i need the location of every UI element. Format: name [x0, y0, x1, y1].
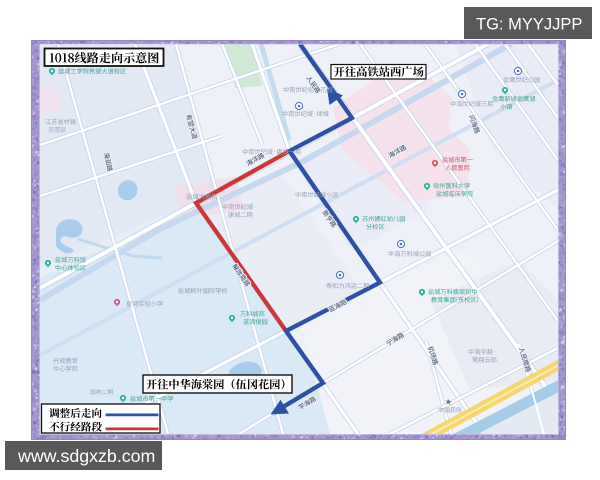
svg-text:www.sdgxzb.com: www.sdgxzb.com	[17, 446, 155, 466]
svg-text:TG: MYYJJPP: TG: MYYJJPP	[476, 16, 582, 34]
